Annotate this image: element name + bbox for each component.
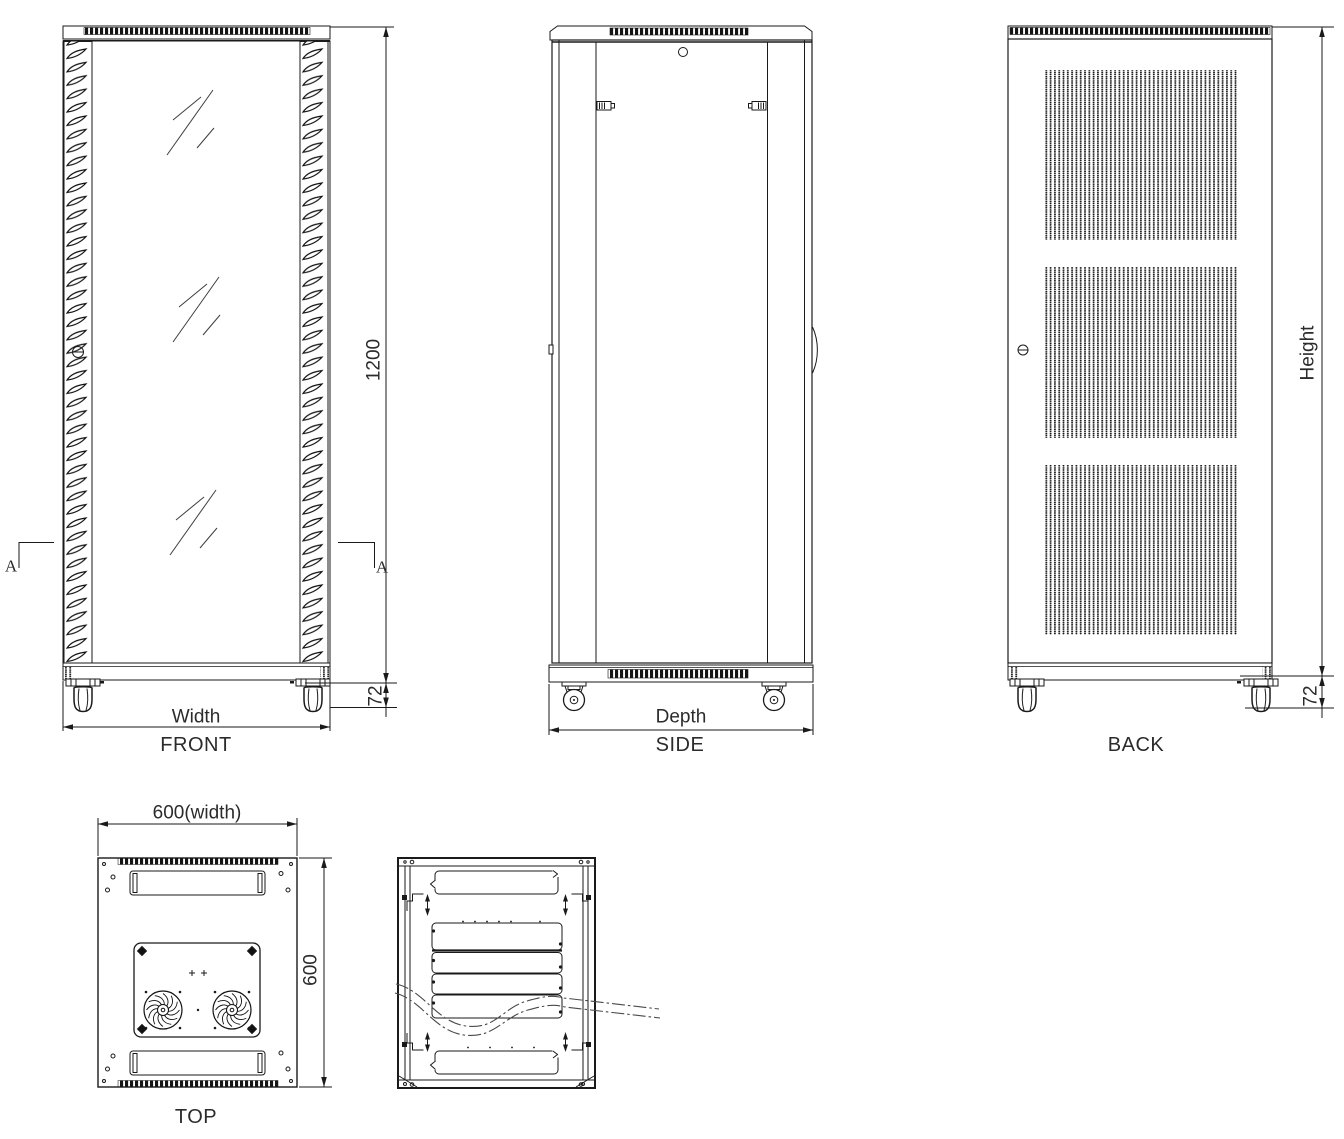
perforated-panel-middle [1043,267,1237,438]
front-view-drawing [19,26,397,731]
cable-entry-slot-top [429,869,560,894]
side-hinge-notch [549,345,553,354]
front-caster-dimension: 72 [367,685,386,706]
front-left-caster [66,679,100,712]
top-fan-panel [134,943,260,1037]
front-height-dimension: 1200 [365,339,384,381]
back-caster-dimension: 72 [1302,685,1321,706]
fan-right [213,991,251,1029]
rack-cabinet-technical-drawing: 1200 72 Width FRONT A A Depth SIDE Heigh… [0,0,1344,1139]
base-interior-view-drawing [395,858,660,1088]
back-view-label: BACK [1108,735,1164,755]
side-view-label: SIDE [656,735,705,755]
perforated-panel-bottom [1043,465,1237,635]
back-right-caster [1244,679,1278,712]
section-line-left [19,543,54,569]
perforated-panel-top [1043,70,1237,240]
top-width-dimension: 600(width) [153,804,242,823]
side-front-caster [562,682,586,711]
front-right-caster [296,679,330,712]
fan-left [144,991,182,1029]
top-cable-slot-rear [130,1051,265,1075]
top-view-drawing [98,818,332,1087]
back-height-dimension: Height [1299,326,1318,381]
side-depth-dimension: Depth [656,708,707,727]
front-right-vent-column [300,41,328,663]
side-view-drawing [549,26,817,735]
section-line-right [338,543,375,569]
back-view-drawing [1008,26,1334,718]
drawing-linework [0,0,1344,1139]
back-left-caster [1010,679,1044,712]
section-marker-a-left: A [5,558,17,575]
section-marker-a-right: A [376,559,388,576]
front-view-label: FRONT [160,735,231,755]
side-door-handle [813,327,818,373]
top-depth-dimension: 600 [302,954,321,986]
top-cable-slot-front [130,871,265,895]
side-rear-caster [762,682,786,711]
top-view-label: TOP [175,1107,217,1127]
front-width-dimension: Width [172,708,221,727]
cable-entry-slot-bottom [429,1050,560,1075]
